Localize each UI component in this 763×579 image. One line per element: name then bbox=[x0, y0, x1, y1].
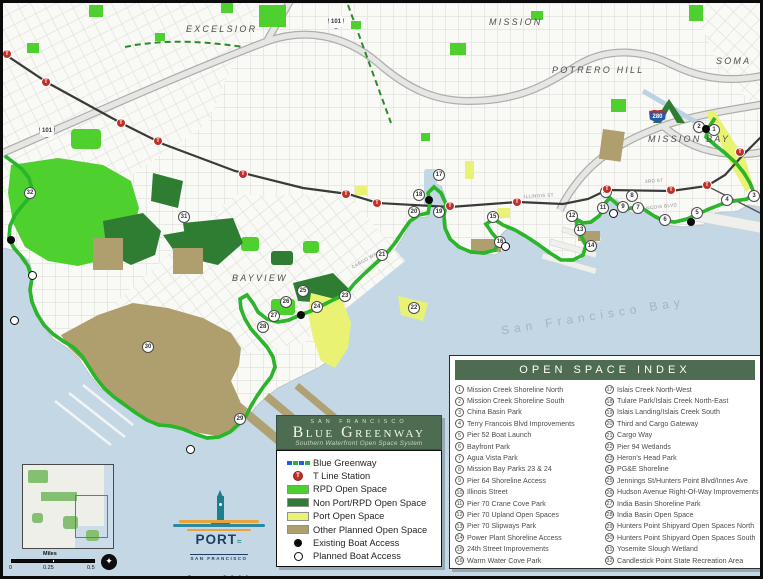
planned-boat-access-icon bbox=[28, 271, 37, 280]
open-space-marker: 28 bbox=[257, 321, 269, 333]
map-subtitle: Southern Waterfront Open Space System bbox=[277, 440, 441, 447]
index-item-number: 7 bbox=[455, 454, 464, 463]
index-item-number: 11 bbox=[455, 499, 464, 508]
rpd-open-space-swatch bbox=[283, 485, 313, 494]
open-space-marker: 24 bbox=[311, 301, 323, 313]
open-space-marker: 11 bbox=[597, 202, 609, 214]
index-item-label: China Basin Park bbox=[467, 408, 522, 416]
us-101-shield-icon: 101 bbox=[39, 124, 55, 138]
port-wordmark: PORT≈ bbox=[173, 534, 265, 547]
open-space-marker: 6 bbox=[659, 214, 671, 226]
open-space-marker: 8 bbox=[626, 190, 638, 202]
blue-greenway-dash-icon bbox=[287, 461, 310, 465]
map-title: Blue Greenway bbox=[277, 425, 441, 440]
t-line-station-icon: T bbox=[116, 118, 126, 128]
index-item-label: Pier 64 Shoreline Access bbox=[467, 477, 546, 485]
index-item-label: Mission Creek Shoreline South bbox=[467, 397, 564, 405]
t-line-station-icon: T bbox=[341, 189, 351, 199]
existing-boat-access-icon bbox=[294, 539, 302, 547]
index-item-label: Pier 70 Upland Open Spaces bbox=[467, 511, 559, 519]
index-item: 16Warm Water Cove Park bbox=[455, 555, 605, 566]
t-line-station-icon: T bbox=[2, 49, 12, 59]
index-item: 29Hunters Point Shipyard Open Spaces Nor… bbox=[605, 521, 755, 532]
index-item-number: 2 bbox=[455, 397, 464, 406]
port-wordmark-sub: SAN FRANCISCO bbox=[190, 554, 247, 561]
planned-boat-access-icon bbox=[501, 242, 510, 251]
index-item: 25Jennings St/Hunters Point Blvd/Innes A… bbox=[605, 475, 755, 486]
index-item-label: Pier 94 Wetlands bbox=[617, 443, 671, 451]
open-space-marker: 19 bbox=[433, 206, 445, 218]
t-line-station-icon: T bbox=[293, 471, 303, 481]
index-item-label: Warm Water Cove Park bbox=[467, 557, 541, 565]
index-item-number: 21 bbox=[605, 431, 614, 440]
open-space-index-panel: OPEN SPACE INDEX 1Mission Creek Shorelin… bbox=[449, 355, 761, 569]
neighborhood-label: EXCELSIOR bbox=[186, 24, 257, 34]
index-item-label: Third and Cargo Gateway bbox=[617, 420, 698, 428]
open-space-marker: 23 bbox=[339, 290, 351, 302]
index-item: 22Pier 94 Wetlands bbox=[605, 441, 755, 452]
legend-row: Planned Boat Access bbox=[283, 550, 435, 563]
street-label: ILLINOIS ST bbox=[524, 192, 554, 199]
index-item: 32Candlestick Point State Recreation Are… bbox=[605, 555, 755, 566]
open-space-marker: 20 bbox=[408, 206, 420, 218]
inset-park bbox=[32, 513, 43, 523]
index-item: 23Heron's Head Park bbox=[605, 452, 755, 463]
legend-label: Existing Boat Access bbox=[313, 538, 399, 548]
existing-boat-access-icon bbox=[687, 218, 695, 226]
index-item-label: Mission Creek Shoreline North bbox=[467, 386, 563, 394]
index-item: 11Pier 70 Crane Cove Park bbox=[455, 498, 605, 509]
index-item: 1Mission Creek Shoreline North bbox=[455, 384, 605, 395]
open-space-marker: 26 bbox=[280, 296, 292, 308]
scale-units-label: Miles bbox=[43, 551, 57, 557]
index-item: 7Agua Vista Park bbox=[455, 452, 605, 463]
index-item: 26Hudson Avenue Right-Of-Way Improvement… bbox=[605, 487, 755, 498]
blue-greenway-map-page: San Francisco Bay 101 101 280 EXCELSIORM… bbox=[0, 0, 763, 579]
non-port-rpd-swatch bbox=[287, 498, 309, 507]
t-line-station-icon: T bbox=[512, 197, 522, 207]
index-item: 28India Basin Open Space bbox=[605, 509, 755, 520]
index-item-label: Islais Creek North-West bbox=[617, 386, 692, 394]
legend-label: T Line Station bbox=[313, 471, 370, 481]
index-item-number: 5 bbox=[455, 431, 464, 440]
index-item-number: 28 bbox=[605, 510, 614, 519]
index-item: 31Yosemite Slough Wetland bbox=[605, 543, 755, 554]
inset-park bbox=[28, 470, 48, 483]
open-space-marker: 9 bbox=[617, 201, 629, 213]
street-label: 3RD ST bbox=[645, 178, 664, 184]
open-space-marker: 4 bbox=[721, 194, 733, 206]
index-item: 20Third and Cargo Gateway bbox=[605, 418, 755, 429]
index-column-right: 17Islais Creek North-West18Tulare Park/I… bbox=[605, 384, 755, 566]
us-101-shield-icon: 101 bbox=[328, 15, 344, 29]
open-space-marker: 22 bbox=[408, 302, 420, 314]
existing-boat-access-icon bbox=[283, 539, 313, 547]
legend-row: RPD Open Space bbox=[283, 483, 435, 496]
open-space-marker: 18 bbox=[413, 189, 425, 201]
legend-label: RPD Open Space bbox=[313, 484, 387, 494]
planned-boat-access-icon bbox=[283, 552, 313, 561]
index-item-label: PG&E Shoreline bbox=[617, 465, 669, 473]
open-space-marker: 7 bbox=[632, 202, 644, 214]
index-item-label: Candlestick Point State Recreation Area bbox=[617, 557, 743, 565]
index-item: 17Islais Creek North-West bbox=[605, 384, 755, 395]
index-item-number: 10 bbox=[455, 488, 464, 497]
planned-boat-access-icon bbox=[10, 316, 19, 325]
neighborhood-label: MISSION bbox=[489, 17, 542, 27]
locator-inset-map bbox=[22, 464, 114, 549]
index-item-label: Tulare Park/Islais Creek North-East bbox=[617, 397, 728, 405]
index-item-label: Mission Bay Parks 23 & 24 bbox=[467, 465, 552, 473]
bay-label: San Francisco Bay bbox=[500, 295, 686, 338]
port-of-sf-logo: PORT≈ SAN FRANCISCO June 2011 bbox=[173, 490, 265, 579]
index-item-label: Bayfront Park bbox=[467, 443, 510, 451]
index-item: 6Bayfront Park bbox=[455, 441, 605, 452]
non-port-rpd-swatch bbox=[283, 498, 313, 507]
neighborhood-label: SOMA bbox=[716, 56, 751, 66]
index-item-number: 8 bbox=[455, 465, 464, 474]
open-space-marker: 31 bbox=[178, 211, 190, 223]
open-space-marker: 21 bbox=[376, 249, 388, 261]
open-space-marker: 30 bbox=[142, 341, 154, 353]
scale-tick-label: 0.25 bbox=[43, 565, 54, 571]
legend-label: Non Port/RPD Open Space bbox=[313, 498, 426, 508]
legend-row: Blue Greenway bbox=[283, 456, 435, 469]
t-line-station-icon: T bbox=[445, 201, 455, 211]
index-item: 30Hunters Point Shipyard Open Spaces Sou… bbox=[605, 532, 755, 543]
index-item-number: 32 bbox=[605, 556, 614, 565]
legend-row: Existing Boat Access bbox=[283, 536, 435, 549]
index-item-number: 19 bbox=[605, 408, 614, 417]
index-item-number: 9 bbox=[455, 476, 464, 485]
open-space-marker: 14 bbox=[585, 240, 597, 252]
index-item-label: Hunters Point Shipyard Open Spaces North bbox=[617, 522, 754, 530]
index-item-number: 13 bbox=[455, 522, 464, 531]
index-item-label: Yosemite Slough Wetland bbox=[617, 545, 698, 553]
index-item-label: Power Plant Shoreline Access bbox=[467, 534, 562, 542]
index-item: 24PG&E Shoreline bbox=[605, 464, 755, 475]
index-item-label: Hudson Avenue Right-Of-Way Improvements bbox=[617, 488, 759, 496]
index-item: 18Tulare Park/Islais Creek North-East bbox=[605, 395, 755, 406]
port-open-space-swatch bbox=[283, 512, 313, 521]
rpd-open-space-swatch bbox=[287, 485, 309, 494]
index-item-number: 30 bbox=[605, 533, 614, 542]
index-item-number: 16 bbox=[455, 556, 464, 565]
north-arrow-icon: ✦ bbox=[101, 554, 117, 570]
legend-panel: Blue GreenwayTT Line StationRPD Open Spa… bbox=[276, 450, 442, 567]
open-space-marker: 5 bbox=[691, 207, 703, 219]
existing-boat-access-icon bbox=[702, 125, 710, 133]
blue-greenway-dash-icon bbox=[283, 461, 313, 465]
index-item-number: 14 bbox=[455, 533, 464, 542]
index-item-number: 4 bbox=[455, 419, 464, 428]
legend-row: Non Port/RPD Open Space bbox=[283, 496, 435, 509]
open-space-marker: 15 bbox=[487, 211, 499, 223]
index-item-label: Illinois Street bbox=[467, 488, 508, 496]
index-item-label: Agua Vista Park bbox=[467, 454, 518, 462]
t-line-station-icon: T bbox=[283, 471, 313, 481]
t-line-station-icon: T bbox=[41, 77, 51, 87]
index-item-number: 15 bbox=[455, 545, 464, 554]
neighborhood-label: POTRERO HILL bbox=[552, 65, 644, 75]
legend-label: Planned Boat Access bbox=[313, 551, 401, 561]
index-item-label: Pier 70 Crane Cove Park bbox=[467, 500, 546, 508]
t-line-station-icon: T bbox=[666, 185, 676, 195]
open-space-marker: 13 bbox=[574, 224, 586, 236]
port-open-space-swatch bbox=[287, 512, 309, 521]
index-item-label: Cargo Way bbox=[617, 431, 652, 439]
index-item: 9Pier 64 Shoreline Access bbox=[455, 475, 605, 486]
index-item: 1524th Street Improvements bbox=[455, 543, 605, 554]
index-item-label: Jennings St/Hunters Point Blvd/Innes Ave bbox=[617, 477, 748, 485]
t-line-station-icon: T bbox=[153, 136, 163, 146]
index-item-number: 17 bbox=[605, 385, 614, 394]
index-header: OPEN SPACE INDEX bbox=[455, 360, 755, 380]
index-item-number: 12 bbox=[455, 510, 464, 519]
inset-park bbox=[41, 492, 77, 501]
open-space-marker: 32 bbox=[24, 187, 36, 199]
open-space-marker: 25 bbox=[297, 285, 309, 297]
planned-boat-access-icon bbox=[609, 209, 618, 218]
index-item-label: Pier 70 Slipways Park bbox=[467, 522, 536, 530]
index-item-number: 29 bbox=[605, 522, 614, 531]
index-item-number: 18 bbox=[605, 397, 614, 406]
index-item-label: 24th Street Improvements bbox=[467, 545, 549, 553]
t-line-station-icon: T bbox=[372, 198, 382, 208]
index-item-label: Terry Francois Blvd Improvements bbox=[467, 420, 575, 428]
index-item: 27India Basin Shoreline Park bbox=[605, 498, 755, 509]
legend-row: Port Open Space bbox=[283, 510, 435, 523]
index-item-number: 1 bbox=[455, 385, 464, 394]
neighborhood-label: MISSION BAY bbox=[648, 134, 730, 144]
index-item: 2Mission Creek Shoreline South bbox=[455, 395, 605, 406]
index-item-number: 3 bbox=[455, 408, 464, 417]
index-item-number: 25 bbox=[605, 476, 614, 485]
neighborhood-label: BAYVIEW bbox=[232, 273, 288, 283]
index-item-number: 31 bbox=[605, 545, 614, 554]
map-date: June 2011 bbox=[173, 574, 265, 579]
other-planned-swatch bbox=[287, 525, 309, 534]
open-space-marker: 12 bbox=[566, 210, 578, 222]
index-item-label: Islais Landing/Islais Creek South bbox=[617, 408, 720, 416]
inset-extent-rectangle bbox=[75, 495, 107, 538]
open-space-marker: 29 bbox=[234, 413, 246, 425]
planned-boat-access-icon bbox=[186, 445, 195, 454]
index-item: 5Pier 52 Boat Launch bbox=[455, 430, 605, 441]
existing-boat-access-icon bbox=[7, 236, 15, 244]
legend-label: Other Planned Open Space bbox=[313, 525, 427, 535]
existing-boat-access-icon bbox=[297, 311, 305, 319]
t-line-station-icon: T bbox=[702, 180, 712, 190]
scale-tick-label: 0 bbox=[9, 565, 12, 571]
open-space-marker: 3 bbox=[748, 190, 760, 202]
index-item: 21Cargo Way bbox=[605, 430, 755, 441]
interstate-280-shield-icon: 280 bbox=[649, 109, 666, 123]
index-item-label: India Basin Open Space bbox=[617, 511, 694, 519]
legend-row: Other Planned Open Space bbox=[283, 523, 435, 536]
title-block: SAN FRANCISCO Blue Greenway Southern Wat… bbox=[276, 415, 442, 450]
other-planned-swatch bbox=[283, 525, 313, 534]
index-column-left: 1Mission Creek Shoreline North2Mission C… bbox=[455, 384, 605, 566]
scale-bar-graphic bbox=[11, 559, 95, 563]
index-item-number: 22 bbox=[605, 442, 614, 451]
index-item-label: Heron's Head Park bbox=[617, 454, 677, 462]
index-item-number: 23 bbox=[605, 454, 614, 463]
existing-boat-access-icon bbox=[425, 196, 433, 204]
index-item-number: 20 bbox=[605, 419, 614, 428]
open-space-marker: 27 bbox=[268, 310, 280, 322]
index-item: 10Illinois Street bbox=[455, 487, 605, 498]
planned-boat-access-icon bbox=[294, 552, 303, 561]
index-item: 12Pier 70 Upland Open Spaces bbox=[455, 509, 605, 520]
t-line-station-icon: T bbox=[602, 184, 612, 194]
index-item: 3China Basin Park bbox=[455, 407, 605, 418]
index-item-label: Hunters Point Shipyard Open Spaces South bbox=[617, 534, 755, 542]
index-item-number: 27 bbox=[605, 499, 614, 508]
open-space-marker: 17 bbox=[433, 169, 445, 181]
index-item-number: 24 bbox=[605, 465, 614, 474]
index-item-number: 6 bbox=[455, 442, 464, 451]
index-item: 4Terry Francois Blvd Improvements bbox=[455, 418, 605, 429]
index-item-number: 26 bbox=[605, 488, 614, 497]
t-line-station-icon: T bbox=[735, 147, 745, 157]
index-item-label: India Basin Shoreline Park bbox=[617, 500, 701, 508]
scale-tick-label: 0.5 bbox=[87, 565, 95, 571]
index-item: 14Power Plant Shoreline Access bbox=[455, 532, 605, 543]
legend-label: Blue Greenway bbox=[313, 458, 377, 468]
ferry-building-tower-icon bbox=[173, 490, 265, 534]
index-item-label: Pier 52 Boat Launch bbox=[467, 431, 531, 439]
index-item: 8Mission Bay Parks 23 & 24 bbox=[455, 464, 605, 475]
index-item: 13Pier 70 Slipways Park bbox=[455, 521, 605, 532]
index-item: 19Islais Landing/Islais Creek South bbox=[605, 407, 755, 418]
legend-label: Port Open Space bbox=[313, 511, 384, 521]
t-line-station-icon: T bbox=[238, 169, 248, 179]
legend-row: TT Line Station bbox=[283, 469, 435, 482]
